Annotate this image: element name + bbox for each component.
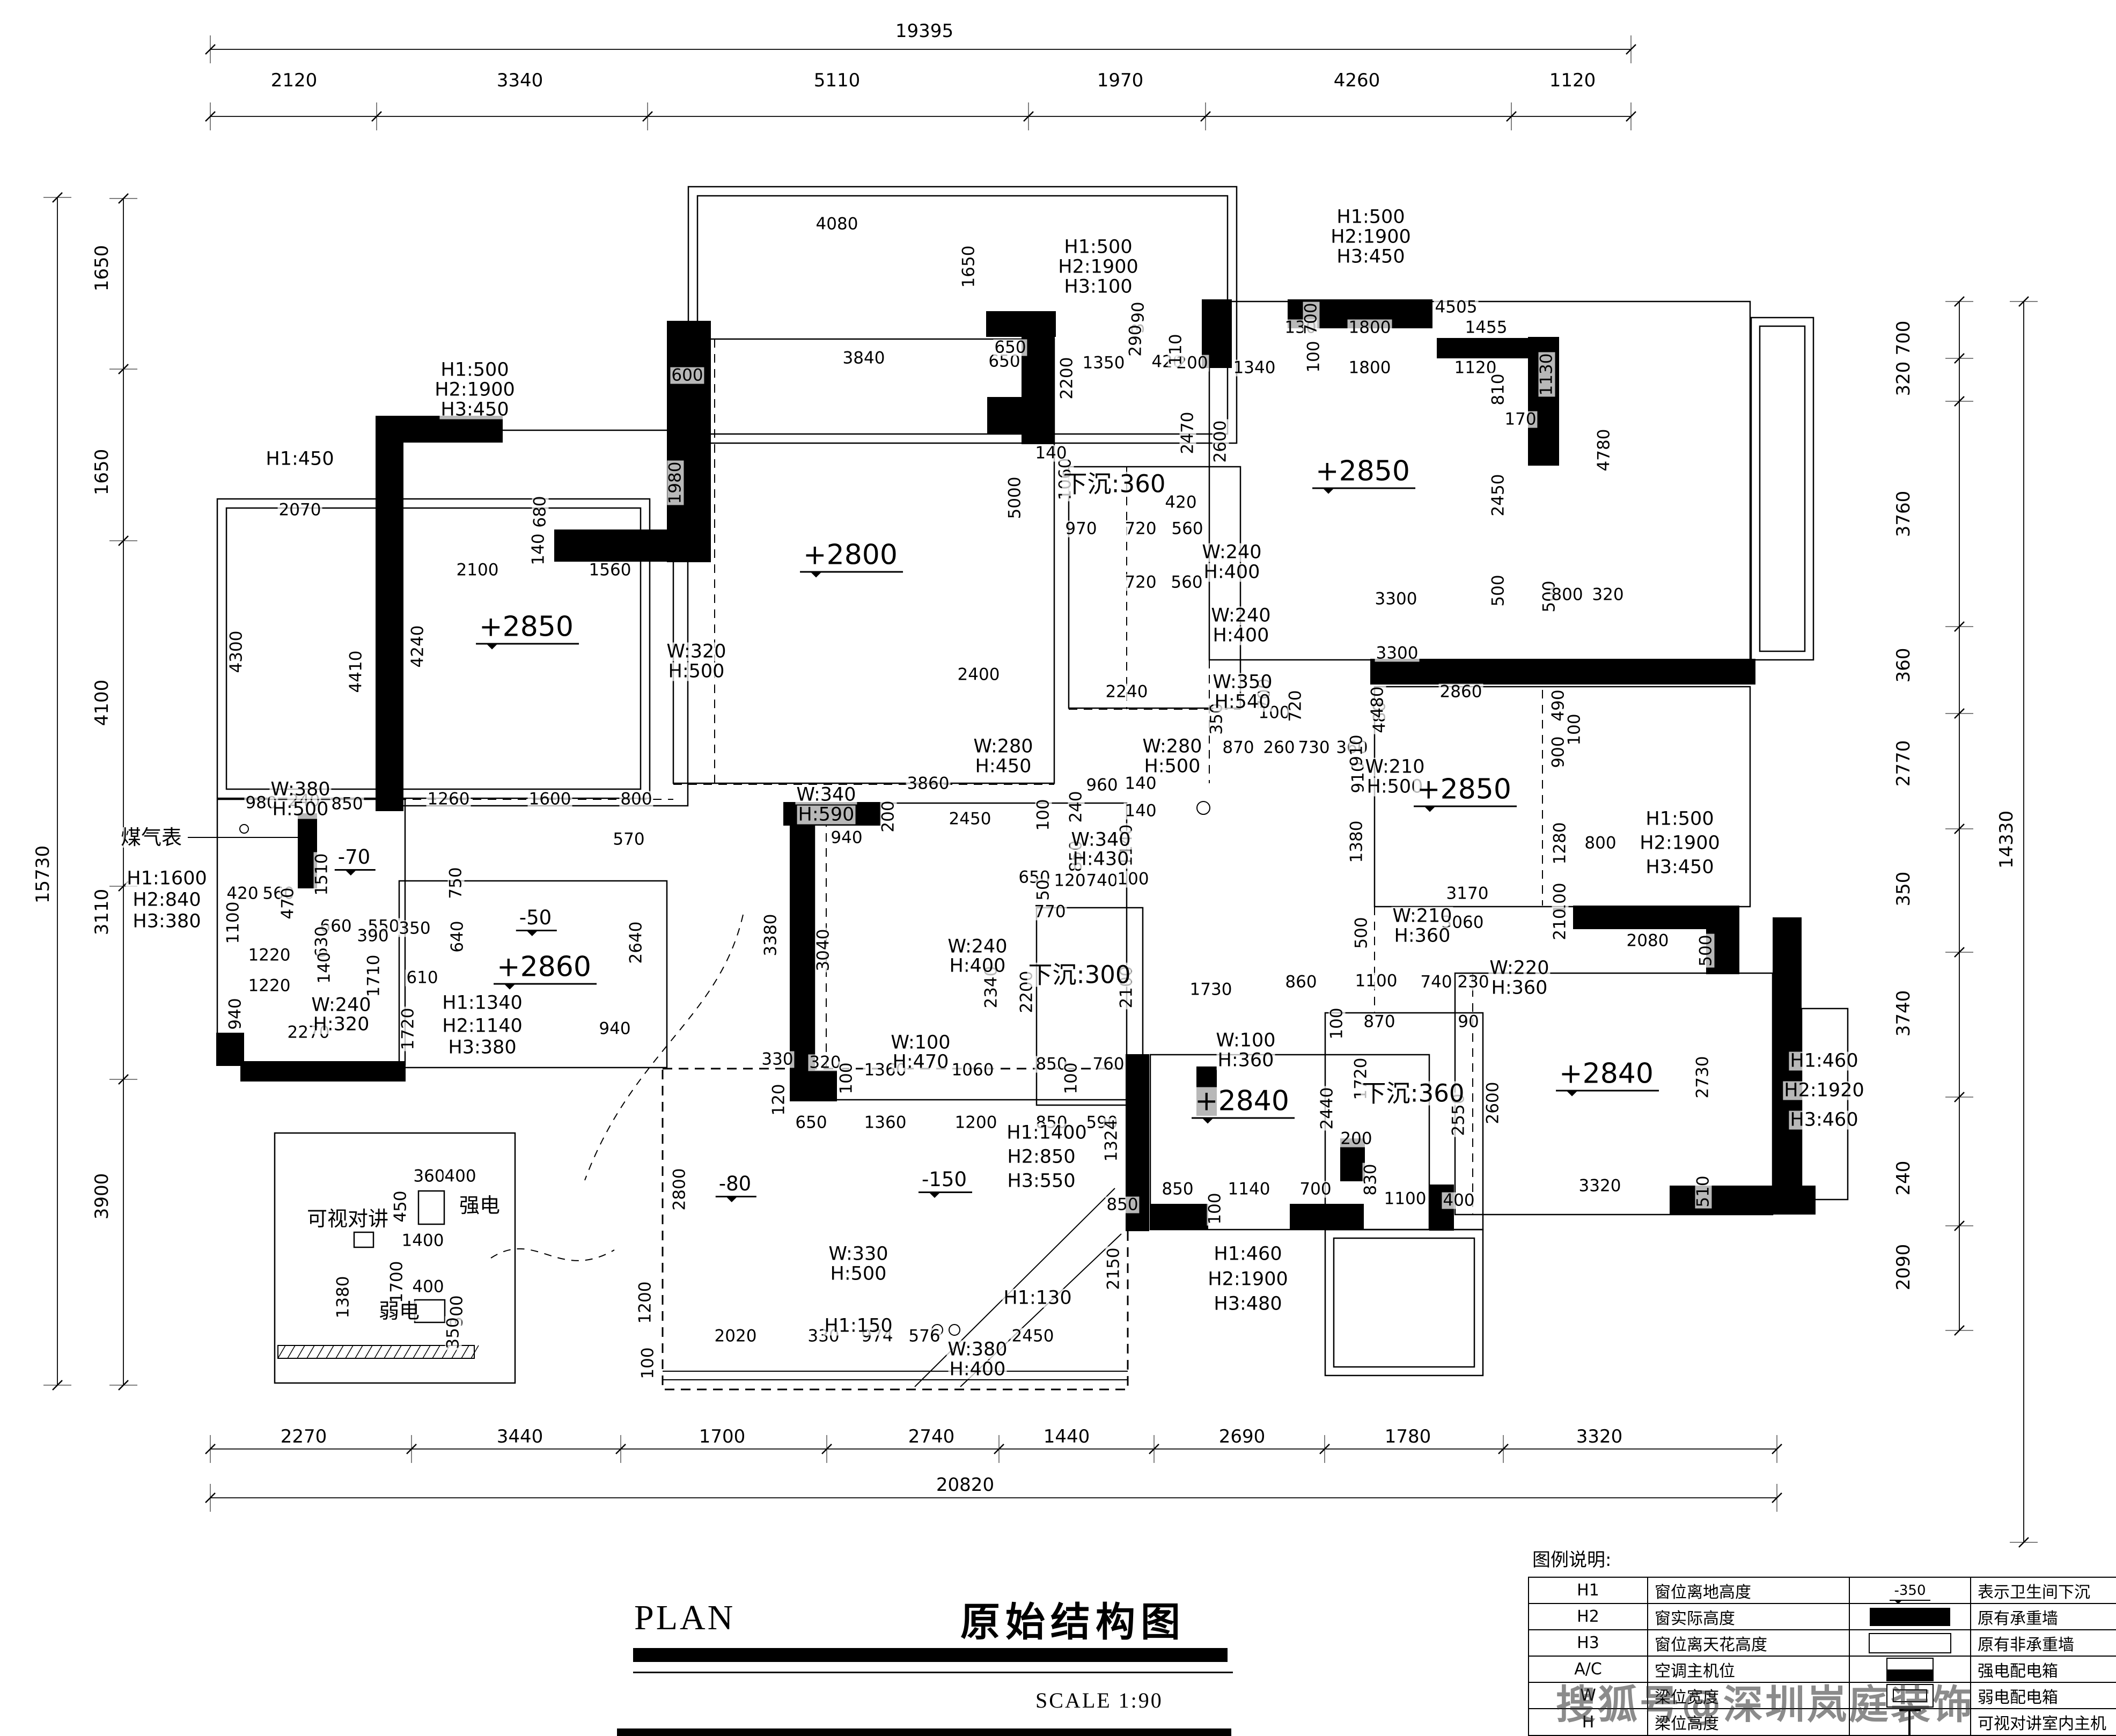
legend-desc: 窗位离天花高度 xyxy=(1648,1630,1849,1656)
hatch-line xyxy=(413,1345,421,1358)
hatch-line xyxy=(317,1345,324,1358)
dim-label: 3300 xyxy=(1374,591,1419,608)
hatch-line xyxy=(336,1345,343,1358)
bearing-wall-segment xyxy=(790,1070,837,1101)
window-beam-annotation: H2:1900 xyxy=(1329,228,1412,247)
dim-label: 100 xyxy=(1207,1191,1224,1225)
level-label: -80 xyxy=(716,1174,756,1197)
dim-label: 2450 xyxy=(1490,473,1507,518)
plan-title-cn: 原始结构图 xyxy=(960,1590,1186,1647)
dim-label: 870 xyxy=(1362,1014,1396,1031)
dim-label: 5110 xyxy=(813,71,862,90)
legend-desc: 窗实际高度 xyxy=(1648,1603,1849,1630)
level-label: +2850 xyxy=(1312,458,1415,489)
dim-label: 4300 xyxy=(229,630,245,674)
dim-label: 1970 xyxy=(1096,71,1145,90)
dim-label: 1780 xyxy=(1384,1428,1432,1446)
dim-label: 940 xyxy=(829,830,863,847)
window-beam-annotation: H:470 xyxy=(892,1053,950,1072)
dim-label: 4100 xyxy=(93,679,111,727)
dim-label: 700 xyxy=(1298,1181,1332,1198)
dim-label: 2740 xyxy=(907,1428,956,1446)
plan-title-en: PLAN xyxy=(634,1598,735,1638)
window-beam-annotation: H3:100 xyxy=(1063,278,1133,297)
dim-label: 110 xyxy=(1168,333,1185,366)
dim-label: 3740 xyxy=(1894,989,1913,1038)
legend-desc2: 原有非承重墙 xyxy=(1971,1630,2116,1656)
dim-label: 940 xyxy=(598,1021,631,1038)
dim-label: 140 xyxy=(1034,445,1068,462)
dim-label: 1700 xyxy=(389,1260,406,1305)
pivot-circle xyxy=(1197,801,1210,814)
bearing-wall-segment xyxy=(554,529,711,562)
dim-label: 800 xyxy=(1583,835,1617,852)
dim-label: 2770 xyxy=(1894,739,1913,788)
dim-label: 500 xyxy=(1354,916,1370,950)
window-beam-annotation: H2:1900 xyxy=(434,381,516,400)
hatch-line xyxy=(384,1345,392,1358)
dim-label: 3340 xyxy=(496,71,545,90)
dim-label: 770 xyxy=(1033,904,1067,921)
dim-label: 2450 xyxy=(1011,1328,1055,1345)
window-beam-annotation: H:500 xyxy=(667,663,726,681)
window-beam-annotation: H:500 xyxy=(1143,757,1202,776)
legend-code: H3 xyxy=(1529,1630,1648,1656)
window-beam-annotation: H:400 xyxy=(1212,627,1270,645)
dim-label: 650 xyxy=(794,1115,828,1131)
equipment-label: 弱电 xyxy=(378,1301,421,1321)
window-beam-annotation: H3:450 xyxy=(439,401,510,420)
window-beam-annotation: H3:450 xyxy=(1335,248,1406,267)
legend-row: H3窗位离天花高度原有非承重墙 xyxy=(1529,1630,2116,1656)
window-beam-annotation: H:400 xyxy=(949,957,1007,976)
dim-label: 4080 xyxy=(815,216,859,233)
window-beam-annotation: W:380 xyxy=(946,1341,1008,1359)
wall-outline xyxy=(1802,1009,1848,1200)
dim-label: 200 xyxy=(1339,1131,1373,1147)
dim-label: 970 xyxy=(1064,521,1098,538)
wall-outline xyxy=(697,196,1228,434)
level-label: +2850 xyxy=(476,613,579,645)
dim-label: 3900 xyxy=(93,1172,111,1221)
wall-outline xyxy=(688,187,1237,443)
dim-label: 940 xyxy=(227,997,244,1031)
dim-label: 1140 xyxy=(1227,1181,1272,1198)
dim-label: 100 xyxy=(640,1346,657,1380)
window-beam-annotation: H:500 xyxy=(829,1265,888,1284)
window-beam-annotation: H1:460 xyxy=(1789,1052,1859,1071)
dim-label: 560 xyxy=(1170,575,1203,591)
dim-label: 1720 xyxy=(400,1007,417,1051)
dim-label: 1220 xyxy=(247,978,292,995)
dim-label: 2400 xyxy=(957,667,1001,683)
window-beam-annotation: H3:450 xyxy=(1644,858,1715,877)
dim-label: 100 xyxy=(1567,712,1583,746)
legend-desc: 窗位离地高度 xyxy=(1648,1577,1849,1603)
dim-label: 240 xyxy=(1068,790,1085,823)
window-beam-annotation: H:590 xyxy=(797,806,856,825)
dim-label: 3440 xyxy=(496,1428,545,1446)
hatch-line xyxy=(346,1345,353,1358)
dim-label: 3320 xyxy=(1578,1178,1622,1195)
dim-label: 4240 xyxy=(410,624,427,669)
window-beam-annotation: H:450 xyxy=(974,757,1033,776)
dim-label: 14330 xyxy=(1997,810,2016,870)
window-beam-annotation: H1:1400 xyxy=(1005,1124,1088,1143)
dim-label: 720 xyxy=(1123,575,1157,591)
dim-label: 420 xyxy=(1164,495,1197,511)
dim-label: 1260 xyxy=(427,791,471,808)
dim-label: 500 xyxy=(1490,573,1507,607)
dim-label: 210 xyxy=(1552,907,1569,941)
window-beam-annotation: H3:550 xyxy=(1006,1172,1076,1191)
level-label: +2800 xyxy=(800,541,903,573)
bearing-wall-segment xyxy=(1370,659,1755,685)
window-beam-annotation: W:350 xyxy=(1211,673,1273,692)
window-beam-annotation: H:500 xyxy=(271,800,330,819)
dim-label: 720 xyxy=(1123,521,1157,538)
window-beam-annotation: W:240 xyxy=(1210,607,1272,626)
window-beam-annotation: W:100 xyxy=(1215,1032,1276,1050)
dim-label: 740 xyxy=(1085,873,1119,889)
hatch-line xyxy=(432,1345,440,1358)
hatch-line xyxy=(365,1345,372,1358)
dim-label: 810 xyxy=(1490,372,1507,406)
wall-outline xyxy=(1325,1230,1483,1375)
bearing-wall-segment xyxy=(1437,338,1539,358)
dim-label: 100 xyxy=(1063,1061,1080,1095)
wall-outline xyxy=(418,1191,444,1224)
dim-label: 3170 xyxy=(1445,886,1490,902)
dim-label: 400 xyxy=(443,1168,477,1185)
dim-label: 1324 xyxy=(1104,1119,1120,1163)
dim-label: 3380 xyxy=(763,913,780,958)
dim-label: 3040 xyxy=(815,928,832,973)
dim-label: 4260 xyxy=(1333,71,1382,90)
dim-label: 600 xyxy=(670,367,704,384)
dim-label: 140 xyxy=(1123,776,1157,792)
dim-label: 3860 xyxy=(906,776,951,792)
dim-label: 1800 xyxy=(1348,360,1392,377)
dim-label: 576 xyxy=(907,1328,941,1345)
dim-label: 4780 xyxy=(1596,428,1613,473)
dim-label: 860 xyxy=(1284,974,1318,991)
wall-outline xyxy=(1760,326,1805,651)
window-beam-annotation: H:430 xyxy=(1072,850,1130,869)
legend-code: H1 xyxy=(1529,1577,1648,1603)
dim-label: 570 xyxy=(612,832,645,848)
dim-label: 19395 xyxy=(894,22,954,40)
window-beam-annotation: H1:500 xyxy=(1644,810,1715,829)
window-beam-annotation: H:400 xyxy=(1203,563,1261,582)
dim-label: 1400 xyxy=(401,1233,445,1249)
dim-label: 2640 xyxy=(628,921,645,965)
dim-label: 15730 xyxy=(34,844,52,904)
dim-label: 800 xyxy=(1550,587,1584,604)
dim-label: 290 xyxy=(1128,323,1144,357)
dim-label: 720 xyxy=(1288,689,1304,723)
dim-label: 3300 xyxy=(1375,645,1420,662)
dim-label: 910 xyxy=(1349,733,1365,767)
dim-label: 320 xyxy=(1894,361,1913,398)
bearing-wall-segment xyxy=(216,1033,244,1066)
equipment-label: 强电 xyxy=(458,1195,501,1216)
dim-label: 870 xyxy=(1221,740,1255,756)
window-beam-annotation: H:360 xyxy=(1490,979,1549,998)
watermark-text: 搜狐号@深圳岚庭装饰 xyxy=(1556,1673,2092,1730)
dim-label: 2690 xyxy=(1218,1428,1267,1446)
dim-label: 390 xyxy=(356,928,390,945)
dim-label: 350 xyxy=(398,921,431,937)
dim-label: 450 xyxy=(393,1189,409,1223)
window-beam-annotation: W:240 xyxy=(310,996,372,1015)
dim-label: 730 xyxy=(1297,740,1331,756)
window-beam-annotation: H1:130 xyxy=(1002,1289,1072,1308)
pivot-circle xyxy=(240,825,248,833)
dim-label: 740 xyxy=(1419,974,1453,991)
dim-label: 1340 xyxy=(1232,360,1277,377)
dim-label: 100 xyxy=(1035,798,1052,832)
pivot-circle xyxy=(949,1325,960,1335)
level-label: +2840 xyxy=(1556,1060,1659,1092)
dim-label: 1200 xyxy=(954,1115,998,1131)
bearing-wall-segment xyxy=(667,321,711,562)
window-beam-annotation: H1:500 xyxy=(439,361,510,380)
hatch-line xyxy=(278,1345,285,1358)
window-beam-annotation: H2:1900 xyxy=(1207,1270,1289,1289)
dim-label: 1200 xyxy=(637,1281,654,1325)
dim-label: 1380 xyxy=(1349,820,1365,864)
window-beam-annotation: H2:850 xyxy=(1006,1148,1076,1167)
dim-label: 2150 xyxy=(1106,1247,1122,1291)
legend-symbol-hollow xyxy=(1849,1630,1971,1656)
dim-label: 120 xyxy=(1053,873,1086,889)
hatch-line xyxy=(374,1345,382,1358)
bearing-wall-segment xyxy=(240,1061,406,1082)
dim-label: 320 xyxy=(1591,587,1625,604)
dim-label: 2600 xyxy=(1485,1081,1502,1126)
window-beam-annotation: W:240 xyxy=(1201,543,1262,562)
dim-label: 480 xyxy=(1370,685,1386,719)
hatch-line xyxy=(394,1345,401,1358)
bearing-wall-segment xyxy=(790,802,814,1080)
dim-label: 2070 xyxy=(278,502,322,519)
title-underline-thin xyxy=(633,1672,1233,1673)
window-beam-annotation: H:320 xyxy=(312,1016,371,1034)
dim-label: 1100 xyxy=(1354,973,1399,990)
window-beam-annotation: W:380 xyxy=(269,781,331,799)
dim-label: 4505 xyxy=(1434,299,1479,316)
dim-label: 2240 xyxy=(1105,684,1149,701)
dim-label: 1455 xyxy=(1464,320,1509,336)
dim-label: 900 xyxy=(1551,735,1567,769)
dim-label: 470 xyxy=(280,886,297,920)
dim-label: 1380 xyxy=(335,1275,352,1320)
window-beam-annotation: W:340 xyxy=(1070,831,1132,850)
window-beam-annotation: W:280 xyxy=(1141,738,1203,756)
window-beam-annotation: W:100 xyxy=(890,1034,951,1053)
equipment-label: 煤气表 xyxy=(120,827,183,848)
level-label: -70 xyxy=(335,847,376,871)
dim-label: 120 xyxy=(771,1083,788,1116)
legend-row: H1窗位离地高度-350表示卫生间下沉 xyxy=(1529,1577,2116,1603)
dim-label: 400 xyxy=(411,1279,445,1296)
window-beam-annotation: H:360 xyxy=(1393,927,1452,946)
dim-label: 140 xyxy=(317,951,333,984)
dim-label: 1060 xyxy=(951,1062,995,1079)
window-beam-annotation: H2:840 xyxy=(131,891,202,910)
window-beam-annotation: W:320 xyxy=(665,643,727,661)
bottom-border-bar xyxy=(617,1728,1231,1736)
sunken-note-label: 下沉:360 xyxy=(1062,472,1166,496)
dim-label: 680 xyxy=(532,495,549,528)
dim-label: 100 xyxy=(839,1061,855,1095)
legend-desc2: 原有承重墙 xyxy=(1971,1603,2116,1630)
dim-label: 400 xyxy=(1442,1193,1475,1209)
dim-label: 510 xyxy=(1695,1174,1712,1208)
dim-label: 1280 xyxy=(1552,821,1569,866)
dim-label: 1130 xyxy=(1539,352,1555,397)
hatch-line xyxy=(403,1345,411,1358)
window-beam-annotation: W:240 xyxy=(946,938,1008,957)
dim-label: 100 xyxy=(1116,871,1150,888)
window-beam-annotation: H3:380 xyxy=(131,913,202,931)
dim-label: 2470 xyxy=(1180,411,1196,455)
window-beam-annotation: H1:1340 xyxy=(441,994,523,1013)
dim-label: 1360 xyxy=(863,1115,908,1131)
dim-label: 1650 xyxy=(961,245,978,289)
dim-label: 3760 xyxy=(1894,490,1913,539)
bearing-wall-segment xyxy=(1670,1186,1816,1215)
window-beam-annotation: H1:450 xyxy=(264,450,335,469)
dashed-leader-curve xyxy=(491,1249,614,1261)
legend-symbol-sunk: -350 xyxy=(1849,1577,1971,1603)
dim-label: 2100 xyxy=(455,562,500,579)
window-beam-annotation: W:340 xyxy=(795,786,857,805)
dim-label: 2080 xyxy=(1626,933,1670,950)
sunken-note-label: 下沉:300 xyxy=(1027,963,1132,987)
bearing-wall-segment xyxy=(376,416,403,811)
level-label: -50 xyxy=(516,908,557,931)
dim-label: 1650 xyxy=(93,448,111,497)
hatch-line xyxy=(326,1345,334,1358)
dim-label: 960 xyxy=(1085,777,1119,794)
legend-symbol-black xyxy=(1849,1603,1971,1630)
dim-label: 1700 xyxy=(698,1428,747,1446)
equipment-label: 可视对讲 xyxy=(306,1209,390,1229)
dim-label: 2450 xyxy=(948,811,993,828)
dim-label: 2600 xyxy=(1213,420,1229,464)
dim-label: 3110 xyxy=(93,888,111,937)
window-beam-annotation: H3:380 xyxy=(447,1039,517,1057)
title-underline-bar xyxy=(633,1648,1228,1662)
level-label: +2850 xyxy=(1414,776,1517,807)
dim-label: 3320 xyxy=(1575,1428,1624,1446)
dim-label: 1100 xyxy=(1383,1191,1428,1208)
dim-label: 1710 xyxy=(366,954,383,998)
dim-label: 2120 xyxy=(270,71,319,90)
window-beam-annotation: H2:1140 xyxy=(441,1017,523,1036)
dim-label: 2860 xyxy=(1439,684,1483,701)
dim-label: 640 xyxy=(450,920,466,953)
dim-label: 350 xyxy=(1894,871,1913,908)
window-beam-annotation: H:540 xyxy=(1214,693,1272,712)
dim-label: 2200 xyxy=(1059,356,1076,401)
window-beam-annotation: W:210 xyxy=(1391,907,1453,926)
hatch-line xyxy=(307,1345,314,1358)
dim-label: 830 xyxy=(1363,1163,1379,1196)
legend-code: H2 xyxy=(1529,1603,1648,1630)
dim-label: 850 xyxy=(1105,1197,1139,1213)
dim-label: 200 xyxy=(880,799,897,833)
dim-label: 800 xyxy=(619,791,653,808)
window-beam-annotation: H3:480 xyxy=(1213,1295,1283,1314)
floor-plan-page: 1939521203340511019704260112022703440170… xyxy=(0,0,2116,1736)
dim-label: 610 xyxy=(405,970,439,987)
dim-label: 700 xyxy=(1303,301,1320,335)
dim-label: 2270 xyxy=(280,1428,328,1446)
hatch-line xyxy=(423,1345,430,1358)
window-beam-annotation: H2:1920 xyxy=(1783,1082,1865,1100)
scale-note: SCALE 1:90 xyxy=(1035,1688,1163,1713)
dim-label: 170 xyxy=(1503,411,1537,428)
window-beam-annotation: H1:500 xyxy=(1063,238,1133,257)
hatch-line xyxy=(355,1345,363,1358)
dim-label: 5000 xyxy=(1007,476,1024,520)
dim-label: 1100 xyxy=(225,901,242,945)
dim-label: 330 xyxy=(760,1051,794,1068)
bearing-wall-segment xyxy=(1290,1204,1364,1230)
legend-desc2: 表示卫生间下沉 xyxy=(1971,1577,2116,1603)
wall-outline xyxy=(1751,318,1813,660)
dim-label: 360 xyxy=(412,1168,446,1185)
window-beam-annotation: W:220 xyxy=(1488,959,1550,978)
sunken-note-label: 下沉:360 xyxy=(1361,1082,1465,1106)
dim-label: 90 xyxy=(1457,1014,1480,1031)
dim-label: 1980 xyxy=(667,461,684,505)
dim-label: 350 xyxy=(445,1316,462,1350)
legend-row: H2窗实际高度原有承重墙 xyxy=(1529,1603,2116,1630)
dim-label: 100 xyxy=(1306,340,1322,373)
window-beam-annotation: H3:460 xyxy=(1789,1111,1859,1130)
dim-label: 260 xyxy=(1262,740,1296,756)
legend-heading: 图例说明: xyxy=(1532,1545,2114,1571)
window-beam-annotation: H1:150 xyxy=(823,1317,893,1336)
dim-label: 1220 xyxy=(247,947,292,964)
dim-label: 1510 xyxy=(314,852,330,897)
dim-label: 1350 xyxy=(1082,355,1126,372)
dim-label: 4410 xyxy=(348,650,365,694)
hatch-line xyxy=(288,1345,295,1358)
dim-label: 3840 xyxy=(842,350,886,367)
dim-label: 1560 xyxy=(588,562,633,579)
dim-label: 560 xyxy=(1170,521,1204,538)
window-beam-annotation: H:360 xyxy=(1217,1051,1275,1070)
dim-label: 420 xyxy=(225,886,259,902)
window-beam-annotation: H2:1900 xyxy=(1639,834,1721,853)
dashed-leader-curve xyxy=(585,915,743,1180)
dim-label: 140 xyxy=(531,532,547,566)
window-beam-annotation: H:400 xyxy=(949,1360,1007,1379)
dim-label: 230 xyxy=(1456,974,1490,991)
wall-outline xyxy=(1334,1238,1474,1367)
dim-label: 240 xyxy=(1894,1160,1913,1197)
dim-label: 750 xyxy=(448,866,465,900)
dim-label: 700 xyxy=(1894,320,1913,357)
dim-label: 2090 xyxy=(1894,1243,1913,1292)
window-beam-annotation: W:280 xyxy=(972,738,1034,756)
dim-label: 100 xyxy=(1329,1006,1346,1040)
